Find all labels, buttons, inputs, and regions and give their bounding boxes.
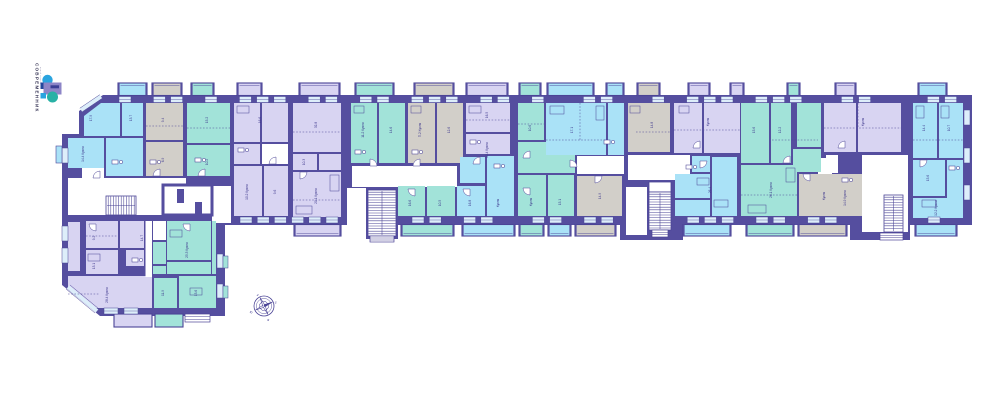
svg-text:Кухня: Кухня	[861, 117, 865, 126]
svg-text:28.4 Кухня: 28.4 Кухня	[105, 287, 109, 303]
svg-text:11.2 Кухня: 11.2 Кухня	[361, 122, 365, 138]
svg-text:Кухня: Кухня	[496, 198, 500, 207]
svg-text:14.4 Кухня: 14.4 Кухня	[81, 146, 85, 162]
svg-text:10.2 Кухня: 10.2 Кухня	[245, 184, 249, 200]
svg-text:з: з	[256, 293, 260, 297]
svg-text:14.7: 14.7	[140, 235, 144, 241]
svg-text:10.7: 10.7	[947, 125, 951, 131]
svg-text:11.9: 11.9	[161, 290, 165, 296]
svg-text:10.6: 10.6	[528, 125, 532, 131]
svg-text:16.5: 16.5	[485, 112, 489, 118]
svg-text:26.4: 26.4	[708, 187, 712, 193]
svg-text:Кухня: Кухня	[529, 197, 533, 206]
svg-text:10.5: 10.5	[438, 200, 442, 206]
svg-text:16.6: 16.6	[258, 117, 262, 123]
svg-text:15.6: 15.6	[926, 175, 930, 181]
svg-text:13.7: 13.7	[129, 115, 133, 121]
svg-text:13.1: 13.1	[92, 263, 96, 269]
svg-text:10.3: 10.3	[302, 159, 306, 165]
svg-text:14.9: 14.9	[598, 193, 602, 199]
svg-text:СОВРЕМЕННИК: СОВРЕМЕННИК	[35, 63, 40, 113]
svg-text:10.4 Кухня: 10.4 Кухня	[485, 142, 489, 158]
svg-text:32.8: 32.8	[314, 122, 318, 128]
svg-text:14.8: 14.8	[650, 122, 654, 128]
svg-text:15.2: 15.2	[205, 117, 209, 123]
svg-text:15.6: 15.6	[752, 127, 756, 133]
svg-text:жилой квартал: жилой квартал	[39, 67, 42, 85]
svg-text:14.6: 14.6	[389, 127, 393, 133]
svg-text:13.6: 13.6	[194, 290, 198, 296]
svg-text:15.1: 15.1	[558, 199, 562, 205]
svg-text:14.4: 14.4	[922, 125, 926, 131]
svg-text:12.2: 12.2	[778, 127, 782, 133]
svg-text:П.2 Кухня: П.2 Кухня	[418, 123, 422, 138]
svg-text:6.9: 6.9	[161, 158, 165, 163]
svg-text:9.4: 9.4	[161, 118, 165, 123]
svg-text:14.9 Кухня: 14.9 Кухня	[843, 190, 847, 206]
svg-text:9.2: 9.2	[92, 236, 96, 241]
svg-text:12.2 Кухня: 12.2 Кухня	[934, 200, 938, 216]
svg-text:с: с	[274, 300, 278, 304]
svg-text:25.3 Кухня: 25.3 Кухня	[185, 242, 189, 258]
svg-text:16.8: 16.8	[468, 200, 472, 206]
svg-text:26.1 Кухня: 26.1 Кухня	[769, 182, 773, 198]
svg-text:Кухня: Кухня	[822, 191, 826, 200]
svg-text:10.2: 10.2	[205, 159, 209, 165]
svg-text:16.6: 16.6	[408, 200, 412, 206]
svg-text:Кухня: Кухня	[706, 117, 710, 126]
svg-text:12.6: 12.6	[447, 127, 451, 133]
svg-text:17.9: 17.9	[89, 115, 93, 121]
svg-text:ю: ю	[249, 310, 253, 315]
svg-text:17.1: 17.1	[570, 127, 574, 133]
svg-text:в: в	[267, 318, 271, 322]
svg-text:20.1 Кухня: 20.1 Кухня	[314, 188, 318, 204]
svg-text:9.6: 9.6	[273, 190, 277, 195]
